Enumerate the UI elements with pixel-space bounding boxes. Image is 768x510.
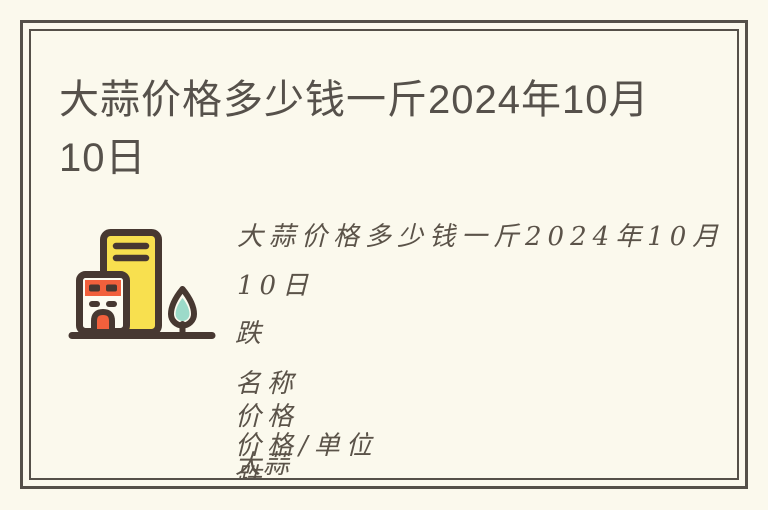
buildings-tree-icon [68,222,216,352]
page-content: 大蒜价格多少钱一斤2024年10月 10日 [31,31,737,478]
body-line-date: 10日 [237,265,314,302]
page-title-line-2: 10日 [59,125,147,183]
body-line-trend: 跌 [235,313,267,350]
body-line-header-name: 名称 [235,363,299,400]
body-line-trend-bottom: 跌 [235,457,267,478]
door-icon [94,312,112,332]
small-window-icon [89,301,100,307]
inner-frame-border: 大蒜价格多少钱一斤2024年10月 10日 [29,29,739,480]
band-window-icon [89,285,100,292]
buildings-illustration [68,222,216,352]
outer-frame-border: 大蒜价格多少钱一斤2024年10月 10日 [20,20,748,489]
page-title-line-1: 大蒜价格多少钱一斤2024年10月 [59,67,649,125]
page: 大蒜价格多少钱一斤2024年10月 10日 [0,0,768,510]
band-window-icon [106,285,117,292]
body-line-title: 大蒜价格多少钱一斤2024年10月 [237,216,724,253]
small-window-icon [106,301,117,307]
